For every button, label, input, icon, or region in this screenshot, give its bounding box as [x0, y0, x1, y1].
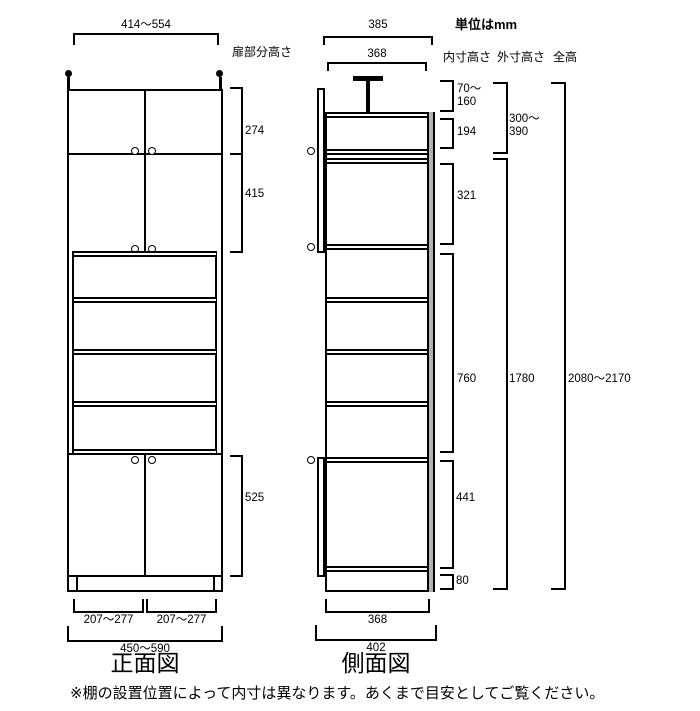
- fv-middle-door-seam: [144, 153, 146, 253]
- ih-value-5: 441: [456, 492, 475, 505]
- fv-bottom-right-tick-a: [146, 599, 148, 612]
- fv-top-width-tick-right: [217, 33, 219, 45]
- sv-upper-bottom-board: [327, 244, 427, 250]
- fv-upper-door-knob-left: [131, 147, 139, 155]
- ih-value-1-line1: 70～: [457, 83, 481, 96]
- sv-lower-top-board: [327, 457, 427, 463]
- sv-knob-3: [307, 456, 315, 464]
- oh-tick-1b: [493, 152, 506, 154]
- fv-bottom-right-bracket: [146, 611, 217, 613]
- ih-value-1-line2: 160: [457, 96, 476, 109]
- footer-note: ※棚の設置位置によって内寸は異なります。あくまで目安としてご覧ください。: [70, 682, 604, 703]
- inner-height-header: 内寸高さ: [443, 50, 491, 64]
- fv-upper-door-seam: [144, 89, 146, 153]
- ih-tick-6a: [440, 574, 452, 576]
- fv-door-bracket-tick-1: [230, 87, 241, 89]
- outer-height-header: 外寸高さ: [497, 50, 545, 64]
- fv-door-bracket-tick-2: [230, 153, 241, 155]
- ih-tick-2a: [440, 118, 452, 120]
- ih-tick-1a: [440, 80, 452, 82]
- fv-total-width-tick-a: [67, 626, 69, 641]
- sv-bottom-inner-tick-b: [428, 599, 430, 612]
- front-view-caption: 正面図: [67, 651, 223, 676]
- sv-shelf-2: [327, 349, 427, 355]
- oh-tick-2b: [493, 588, 506, 590]
- sv-bottom-edge: [325, 590, 435, 592]
- fv-bottom-door-seam: [144, 455, 146, 575]
- fv-bottom-left-tick-b: [142, 599, 144, 612]
- sv-cap-bottom-board: [327, 149, 427, 155]
- sv-inner-depth-tick-a: [327, 62, 329, 71]
- ih-bracket-1: [452, 80, 454, 112]
- fv-bottom-left-bracket: [73, 611, 144, 613]
- side-view-caption: 側面図: [315, 651, 437, 676]
- sv-outer-depth-tick-b: [431, 36, 433, 45]
- fv-base-post-right: [213, 577, 215, 590]
- oh-value-1-line1: 300～: [509, 113, 540, 126]
- ih-tick-4b: [440, 451, 452, 453]
- ih-bracket-3: [452, 163, 454, 245]
- fv-top-width-bracket: [73, 33, 219, 35]
- sv-top-board-line: [327, 116, 427, 118]
- sv-inner-depth-label: 368: [327, 48, 427, 61]
- fv-door-bracket-lower: [241, 455, 243, 577]
- fv-top-width-tick-left: [73, 33, 75, 45]
- fv-bottom-right-width-label: 207～277: [146, 614, 217, 627]
- sv-lower-door-strip: [317, 457, 325, 577]
- ih-value-4: 760: [457, 373, 476, 386]
- sv-back-panel: [427, 112, 435, 592]
- sv-inner-depth-bracket: [327, 62, 427, 64]
- fv-tension-bolt-left-stem: [67, 77, 70, 89]
- fv-door-bracket-tick-4: [230, 455, 241, 457]
- ih-tick-3a: [440, 163, 452, 165]
- ih-tick-3b: [440, 243, 452, 245]
- oh-tick-1a: [493, 82, 506, 84]
- sv-tension-rod-stem: [366, 81, 370, 113]
- sv-bottom-outer-tick-a: [315, 625, 317, 640]
- oh-bracket-2: [506, 158, 508, 590]
- th-value: 2080～2170: [568, 373, 631, 386]
- fv-total-width-tick-b: [221, 626, 223, 641]
- ih-tick-5b: [440, 567, 452, 569]
- ih-bracket-6: [452, 574, 454, 590]
- th-tick-a: [551, 82, 564, 84]
- fv-middle-door-height-label: 415: [245, 188, 264, 201]
- fv-total-width-bracket: [67, 640, 223, 642]
- fv-tension-bolt-right-stem: [219, 77, 222, 89]
- ih-tick-5a: [440, 460, 452, 462]
- sv-shelf-1: [327, 297, 427, 303]
- sv-knob-1: [307, 147, 315, 155]
- total-height-header: 全高: [553, 50, 577, 64]
- sv-bottom-inner-bracket: [325, 611, 430, 613]
- ih-value-6: 80: [456, 575, 469, 588]
- sv-outer-depth-bracket: [323, 36, 433, 38]
- fv-top-width-label: 414～554: [73, 19, 219, 32]
- oh-value-1-line2: 390: [509, 126, 528, 139]
- sv-inner-depth-tick-b: [425, 62, 427, 71]
- ih-value-2: 194: [457, 126, 476, 139]
- fv-bottom-door-knob-left: [131, 456, 139, 464]
- sv-shelf-3: [327, 401, 427, 407]
- sv-knob-2: [307, 243, 315, 251]
- th-tick-b: [551, 588, 564, 590]
- fv-door-bracket-upper: [241, 87, 243, 253]
- fv-upper-door-knob-right: [148, 147, 156, 155]
- ih-tick-6b: [440, 588, 452, 590]
- ih-bracket-4: [452, 253, 454, 453]
- fv-shelf-1: [74, 297, 216, 303]
- fv-bottom-right-tick-b: [215, 599, 217, 612]
- ih-bracket-5: [452, 460, 454, 569]
- ih-bracket-2: [452, 118, 454, 149]
- oh-tick-2a: [493, 158, 506, 160]
- fv-door-section-label: 扉部分高さ: [232, 45, 292, 59]
- fv-door-bracket-tick-3: [230, 251, 241, 253]
- sv-bottom-inner-tick-a: [325, 599, 327, 612]
- fv-bottom-left-width-label: 207～277: [73, 614, 144, 627]
- fv-base-post-left: [76, 577, 78, 590]
- sv-outer-depth-label: 385: [323, 19, 433, 32]
- sv-top-edge: [325, 112, 435, 114]
- sv-bottom-inner-depth-label: 368: [325, 614, 430, 627]
- unit-label: 単位はmm: [455, 14, 517, 33]
- th-bracket: [564, 82, 566, 590]
- oh-bracket-1: [506, 82, 508, 154]
- ih-tick-2b: [440, 147, 452, 149]
- fv-upper-door-height-label: 274: [245, 125, 264, 138]
- fv-bottom-door-knob-right: [148, 456, 156, 464]
- diagram-canvas: 414～554 扉部分高さ 274 415 525 207～277 207～: [0, 0, 700, 711]
- sv-lower-bottom-board: [327, 566, 427, 572]
- sv-main-top-board: [327, 158, 427, 164]
- fv-door-bracket-tick-5: [230, 575, 241, 577]
- ih-value-3: 321: [457, 190, 476, 203]
- fv-open-top-board: [74, 251, 216, 257]
- fv-lower-door-height-label: 525: [245, 492, 264, 505]
- ih-tick-4a: [440, 253, 452, 255]
- sv-upper-door-strip: [317, 88, 325, 253]
- fv-tension-bolt-right-icon: [216, 70, 223, 77]
- sv-outer-depth-tick-a: [323, 36, 325, 45]
- sv-bottom-outer-bracket: [315, 639, 437, 641]
- fv-tension-bolt-left-icon: [65, 70, 72, 77]
- oh-value-2: 1780: [509, 373, 535, 386]
- sv-bottom-outer-tick-b: [435, 625, 437, 640]
- fv-base-top-line: [67, 575, 223, 577]
- fv-bottom-left-tick-a: [73, 599, 75, 612]
- fv-shelf-3: [74, 401, 216, 407]
- fv-shelf-2: [74, 349, 216, 355]
- ih-tick-1b: [440, 110, 452, 112]
